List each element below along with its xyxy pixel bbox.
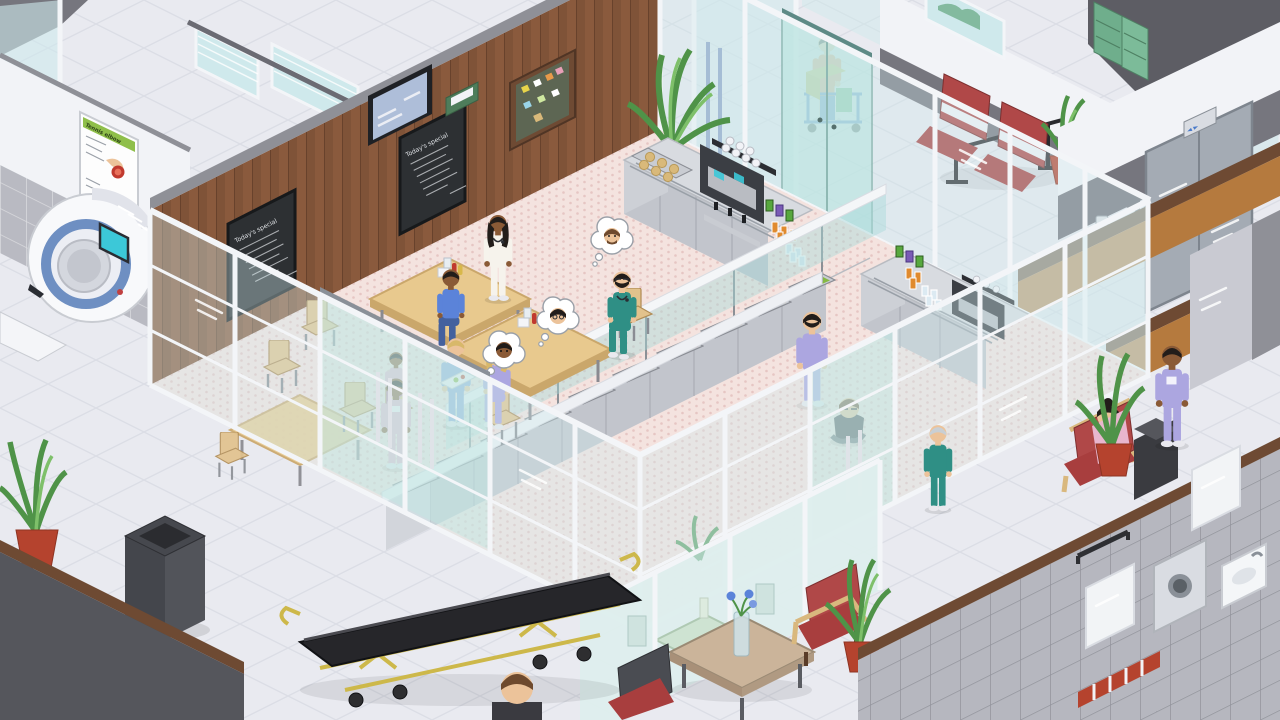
- hospital-canteen-scene: Tennis elbow: [0, 0, 1280, 720]
